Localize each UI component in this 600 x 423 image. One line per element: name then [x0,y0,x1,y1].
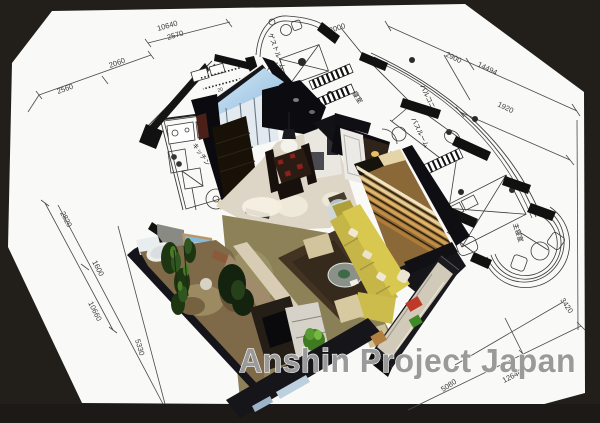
svg-text:Anshin Project Japan: Anshin Project Japan [239,342,576,379]
